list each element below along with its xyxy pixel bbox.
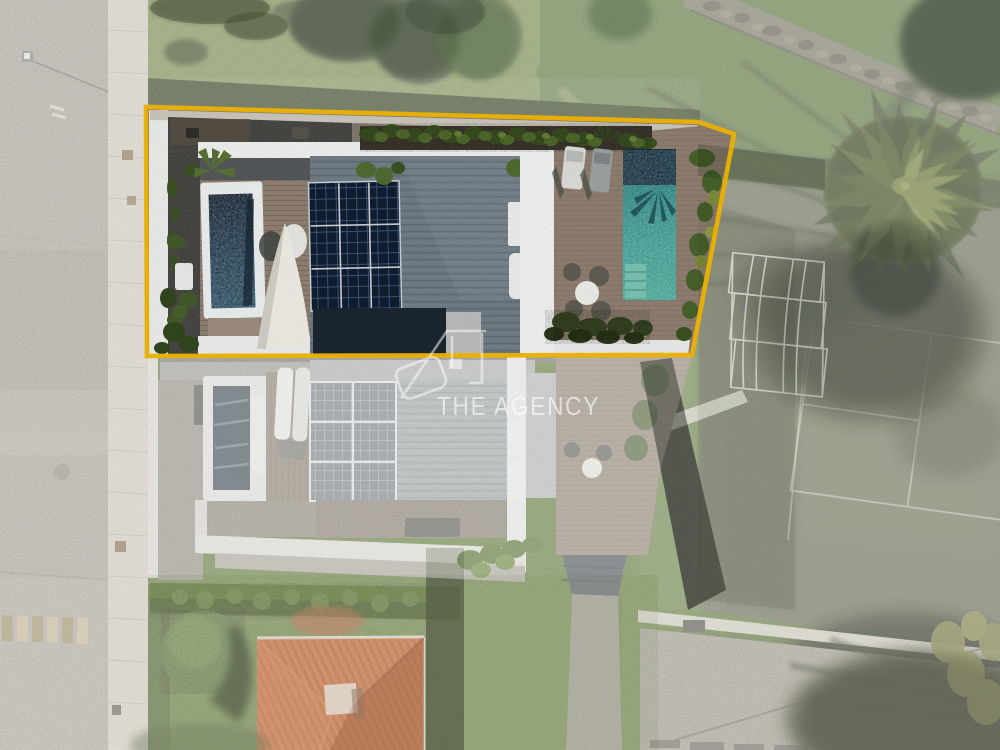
svg-text:THE AGENCY: THE AGENCY bbox=[437, 391, 600, 421]
